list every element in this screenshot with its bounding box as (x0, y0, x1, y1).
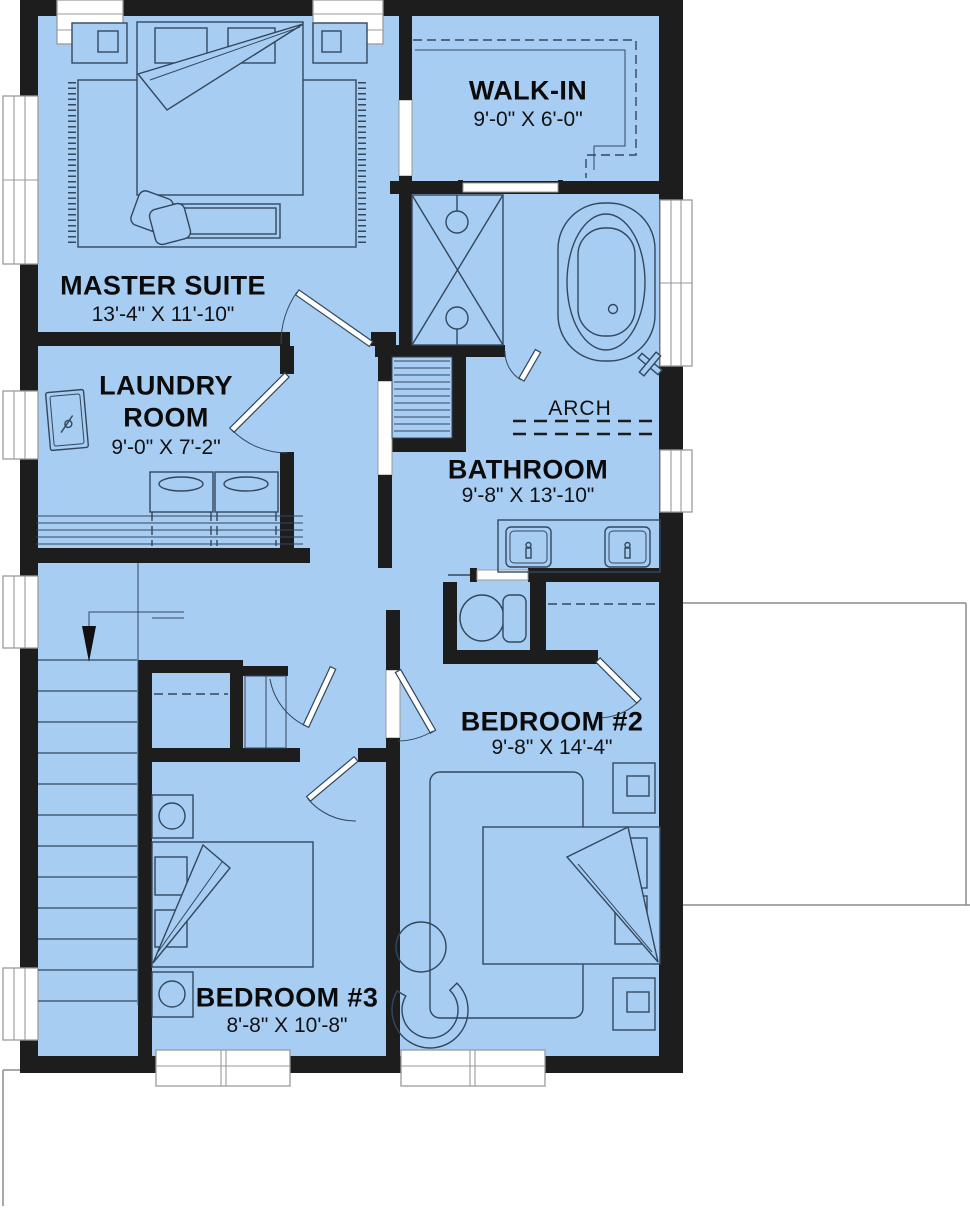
garage-roof-outline (683, 603, 970, 905)
window (156, 1050, 290, 1086)
nightstand-icon (613, 763, 655, 813)
room-label-laundry-line2: ROOM (123, 403, 209, 434)
double-bed-icon (137, 22, 303, 195)
room-dims-laundry: 9'-0" X 7'-2" (111, 436, 220, 460)
window (660, 200, 692, 366)
room-dims-walk-in: 9'-0" X 6'-0" (473, 108, 582, 132)
floor-plan-drawing (0, 0, 970, 1208)
room-label-laundry-line1: LAUNDRY (99, 371, 233, 402)
nightstand-icon (613, 978, 655, 1030)
porch-roof-outline (3, 1070, 20, 1206)
window (401, 1050, 545, 1086)
room-label-master-suite: MASTER SUITE (60, 271, 266, 302)
room-dims-bathroom: 9'-8" X 13'-10" (462, 484, 595, 508)
opening-master-walkin (399, 92, 412, 184)
nightstand-icon (152, 972, 193, 1017)
window (3, 968, 38, 1040)
nightstand-icon (152, 795, 193, 838)
floor-plan: MASTER SUITE 13'-4" X 11'-10" WALK-IN 9'… (0, 0, 970, 1208)
window (3, 96, 38, 264)
opening-hall-linen (378, 373, 392, 483)
room-label-bedroom-3: BEDROOM #3 (196, 983, 379, 1014)
arch-label: ARCH (548, 397, 612, 421)
room-label-bedroom-2: BEDROOM #2 (461, 707, 644, 738)
toilet-icon (460, 595, 526, 642)
room-label-walk-in: WALK-IN (469, 76, 587, 107)
room-dims-master-suite: 13'-4" X 11'-10" (92, 303, 235, 327)
nightstand-icon (313, 23, 367, 63)
window (660, 450, 692, 512)
double-bed-icon (483, 827, 660, 964)
double-bed-icon (152, 842, 313, 967)
window (3, 391, 38, 459)
window (3, 576, 38, 648)
room-dims-bedroom-2: 9'-8" X 14'-4" (492, 736, 613, 760)
nightstand-icon (72, 23, 127, 63)
room-label-bathroom: BATHROOM (448, 455, 608, 486)
room-dims-bedroom-3: 8'-8" X 10'-8" (227, 1014, 348, 1038)
